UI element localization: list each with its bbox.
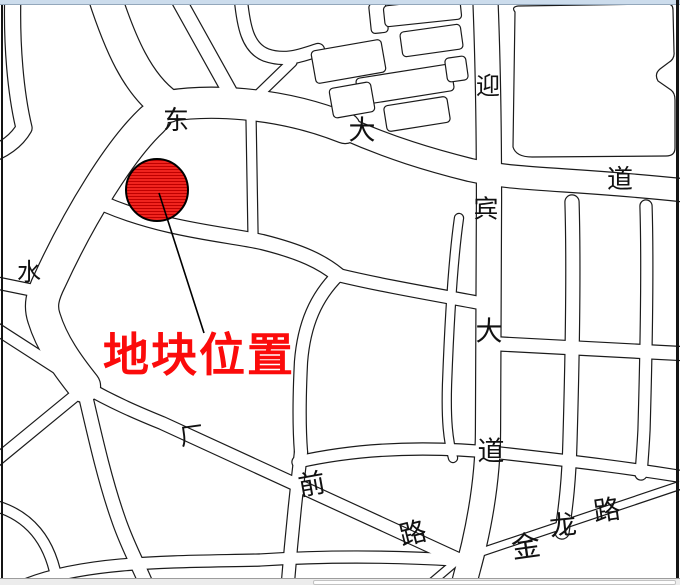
map-canvas[interactable] bbox=[0, 0, 680, 585]
window-edge-strip bbox=[0, 0, 680, 5]
map-right-border bbox=[676, 0, 679, 578]
city-block-5 bbox=[444, 56, 468, 83]
scrollbar-thumb[interactable] bbox=[313, 580, 676, 585]
road-n-connector bbox=[251, 116, 253, 234]
map-viewport: 东大道迎宾大道水厂前路金龙路 地块位置 bbox=[0, 0, 680, 585]
parcel-marker-circle bbox=[126, 159, 188, 221]
map-left-border bbox=[1, 5, 3, 578]
city-block-large-ne bbox=[513, 4, 675, 157]
horizontal-scrollbar[interactable] bbox=[0, 578, 680, 585]
road-grid-vert-2 bbox=[641, 206, 647, 474]
parcel-location-label: 地块位置 bbox=[103, 333, 295, 379]
city-block-6 bbox=[329, 82, 376, 119]
